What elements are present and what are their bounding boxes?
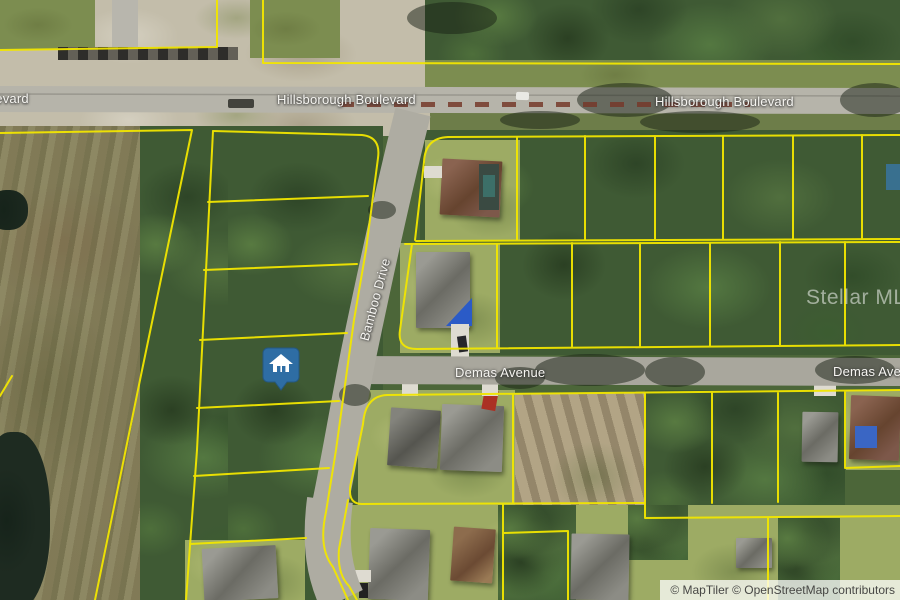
car [516,92,529,100]
roads-and-parcel-overlay [0,0,900,600]
road-surfaces [0,86,900,600]
map-viewport[interactable]: Hillsborough Boulevard Hillsborough Boul… [0,0,900,600]
property-marker[interactable] [261,346,301,392]
street-label-hillsborough-right: Hillsborough Boulevard [655,94,794,109]
map-attribution[interactable]: © MapTiler © OpenStreetMap contributors [660,580,900,600]
car [228,99,254,108]
stellar-mls-watermark: Stellar MLS [806,286,900,310]
street-label-hillsborough-left: Hillsborough Boulevard [0,91,29,106]
street-label-demas-right: Demas Avenue [833,364,900,379]
street-label-hillsborough-center: Hillsborough Boulevard [277,92,416,107]
street-label-demas-center: Demas Avenue [455,365,545,380]
